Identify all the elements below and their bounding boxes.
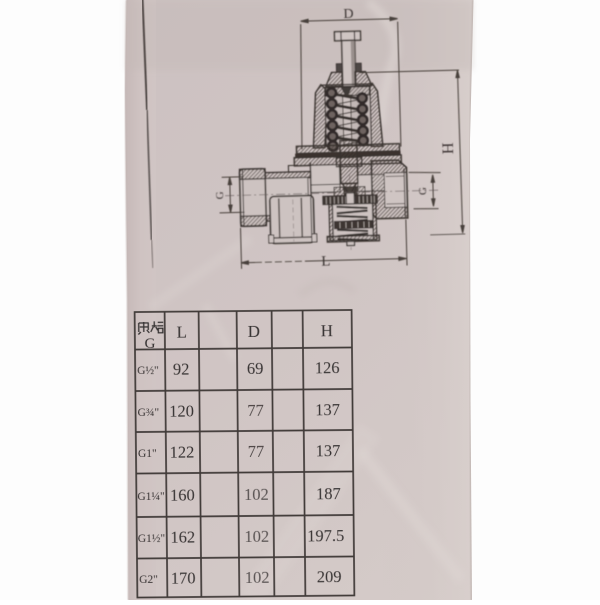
svg-text:L: L	[321, 253, 331, 269]
svg-text:G1½": G1½"	[138, 533, 165, 545]
svg-text:69: 69	[247, 359, 264, 378]
svg-text:122: 122	[170, 442, 195, 461]
svg-text:102: 102	[245, 568, 270, 587]
svg-text:G: G	[144, 336, 155, 352]
svg-text:G: G	[417, 187, 429, 195]
svg-text:197.5: 197.5	[307, 526, 344, 545]
svg-text:G: G	[214, 191, 226, 199]
svg-text:162: 162	[170, 527, 195, 546]
svg-text:187: 187	[316, 484, 341, 503]
svg-text:H: H	[321, 321, 333, 340]
svg-text:102: 102	[244, 485, 269, 504]
svg-text:H: H	[440, 142, 457, 154]
svg-text:77: 77	[247, 401, 264, 420]
svg-text:G1¼": G1¼"	[137, 491, 164, 503]
svg-text:170: 170	[171, 568, 196, 587]
svg-text:G2": G2"	[139, 574, 158, 586]
svg-text:77: 77	[248, 442, 265, 461]
svg-text:102: 102	[244, 527, 269, 546]
svg-text:D: D	[248, 322, 260, 341]
svg-text:D: D	[343, 7, 354, 22]
svg-text:G¾": G¾"	[138, 407, 160, 419]
svg-text:G½": G½"	[137, 365, 159, 377]
svg-text:137: 137	[315, 441, 340, 460]
svg-text:L: L	[177, 323, 188, 342]
svg-text:120: 120	[169, 401, 194, 420]
svg-text:209: 209	[317, 567, 342, 586]
svg-text:160: 160	[170, 485, 195, 504]
svg-text:G1": G1"	[138, 448, 157, 460]
svg-text:92: 92	[173, 360, 190, 379]
svg-text:137: 137	[315, 400, 340, 419]
svg-text:126: 126	[315, 358, 340, 377]
